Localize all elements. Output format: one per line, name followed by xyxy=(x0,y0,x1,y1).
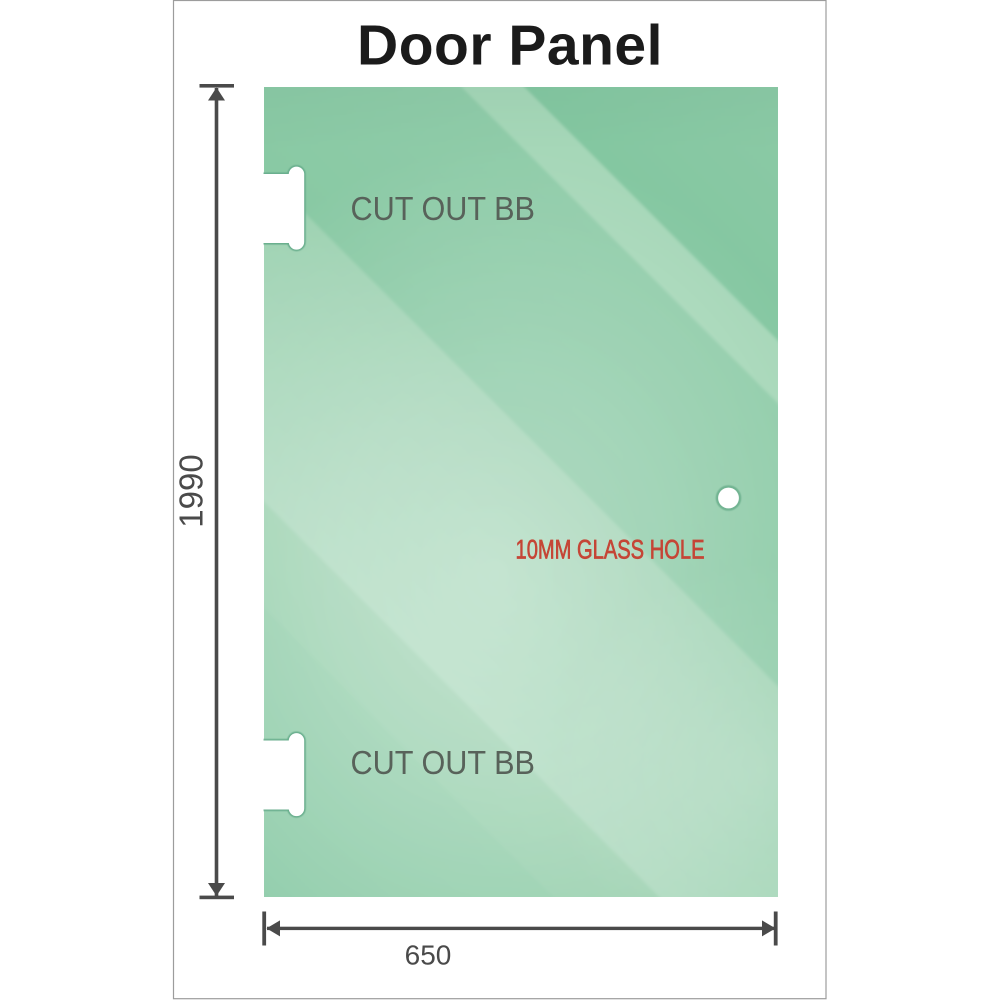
svg-text:650: 650 xyxy=(405,940,452,971)
svg-text:CUT OUT BB: CUT OUT BB xyxy=(351,744,536,781)
svg-text:Door Panel: Door Panel xyxy=(357,14,663,78)
svg-text:10MM GLASS HOLE: 10MM GLASS HOLE xyxy=(516,535,705,565)
svg-text:CUT OUT BB: CUT OUT BB xyxy=(351,190,536,227)
svg-text:1990: 1990 xyxy=(173,454,210,527)
